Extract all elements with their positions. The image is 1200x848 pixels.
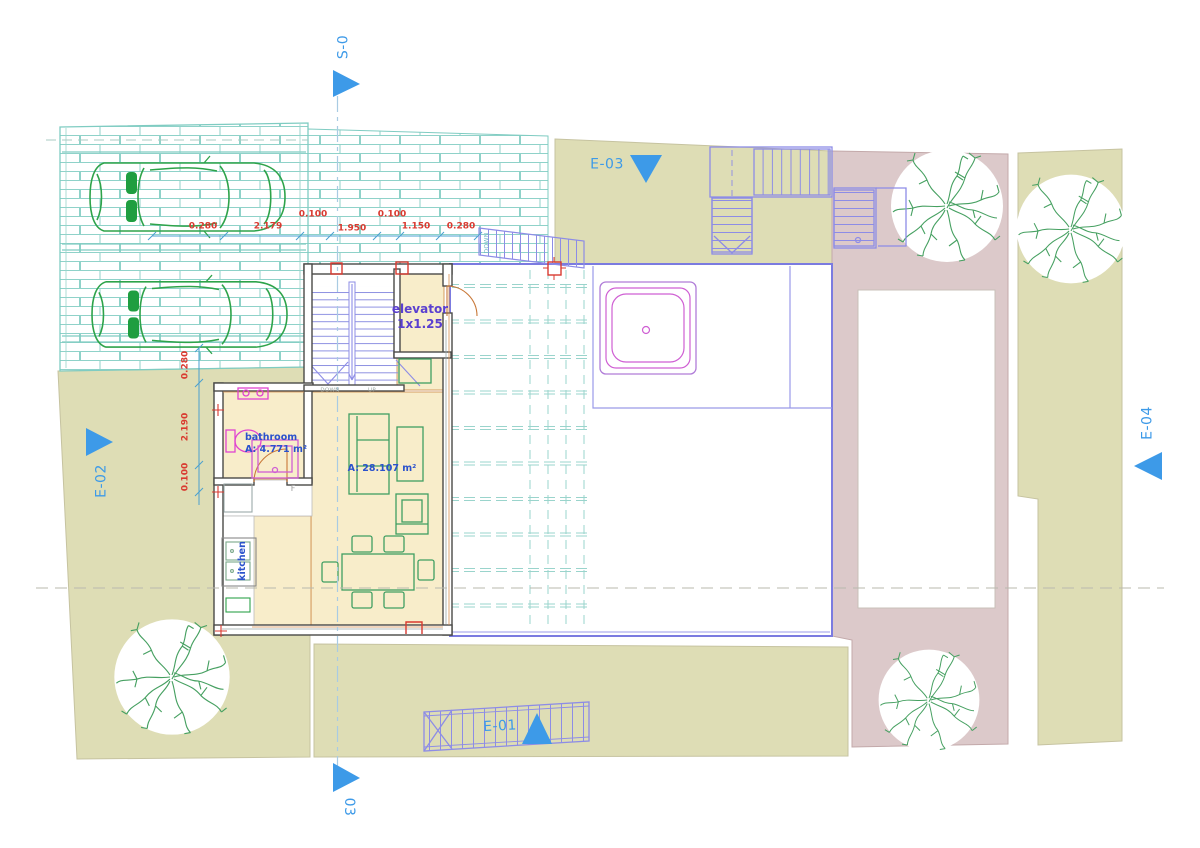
dimension-label: 2.190 [180, 413, 191, 441]
dimension-label: 2.179 [254, 221, 282, 232]
dimension-label: 0.100 [299, 209, 327, 220]
bathroom-area: A: 4.771 m² [245, 444, 307, 456]
elevator-name: elevator [392, 302, 448, 317]
section-arrow-top-icon [333, 70, 360, 97]
dimension-label: 1.950 [338, 223, 366, 234]
dimension-label: 0.280 [180, 351, 191, 379]
living-floor-left [252, 516, 311, 628]
fridge-label: F [291, 484, 296, 494]
bathroom-label: bathroom A: 4.771 m² [245, 432, 307, 456]
dimension-label: 0.100 [378, 209, 406, 220]
bathroom-name: bathroom [245, 432, 307, 444]
deck-joist-hatch [452, 268, 592, 632]
elevation-marker-e01: E-01 [483, 717, 518, 736]
elevation-marker-e04: E-04 [1139, 406, 1157, 440]
dimension-label: 0.100 [180, 463, 191, 491]
exterior-stair-down-label: DOWN [483, 233, 491, 254]
living-area-label: A: 28.107 m² [348, 463, 417, 475]
kitchen-label: kitchen [237, 541, 249, 581]
elevation-marker-e03: E-03 [590, 156, 624, 174]
section-marker-bottom: 03 [339, 798, 357, 817]
tree-icon [879, 650, 980, 751]
terrace [450, 264, 832, 636]
elevator-size: 1x1.25 [392, 317, 448, 332]
pink-inner-white-court [858, 290, 995, 608]
tree-icon [114, 619, 229, 734]
section-marker-top: S-0 [335, 35, 353, 59]
section-arrow-bottom-icon [333, 763, 360, 792]
stair-up-label: UP [368, 388, 376, 395]
stair-down-label: DOWN [320, 388, 339, 395]
dimension-label: 0.280 [189, 221, 217, 232]
floor-plan-canvas: S-0 03 E-03 E-02 E-04 E-01 0.280 2.179 0… [0, 0, 1200, 848]
tree-icon [1017, 175, 1126, 284]
dimension-label: 1.150 [402, 221, 430, 232]
elevation-arrow-e04-icon [1134, 452, 1162, 480]
elevator-label: elevator 1x1.25 [392, 302, 448, 332]
dimension-label: 0.280 [447, 221, 475, 232]
tree-icon [891, 150, 1003, 262]
living-floor [311, 392, 444, 628]
elevation-marker-e02: E-02 [93, 464, 111, 498]
interior-staircase [306, 282, 398, 386]
